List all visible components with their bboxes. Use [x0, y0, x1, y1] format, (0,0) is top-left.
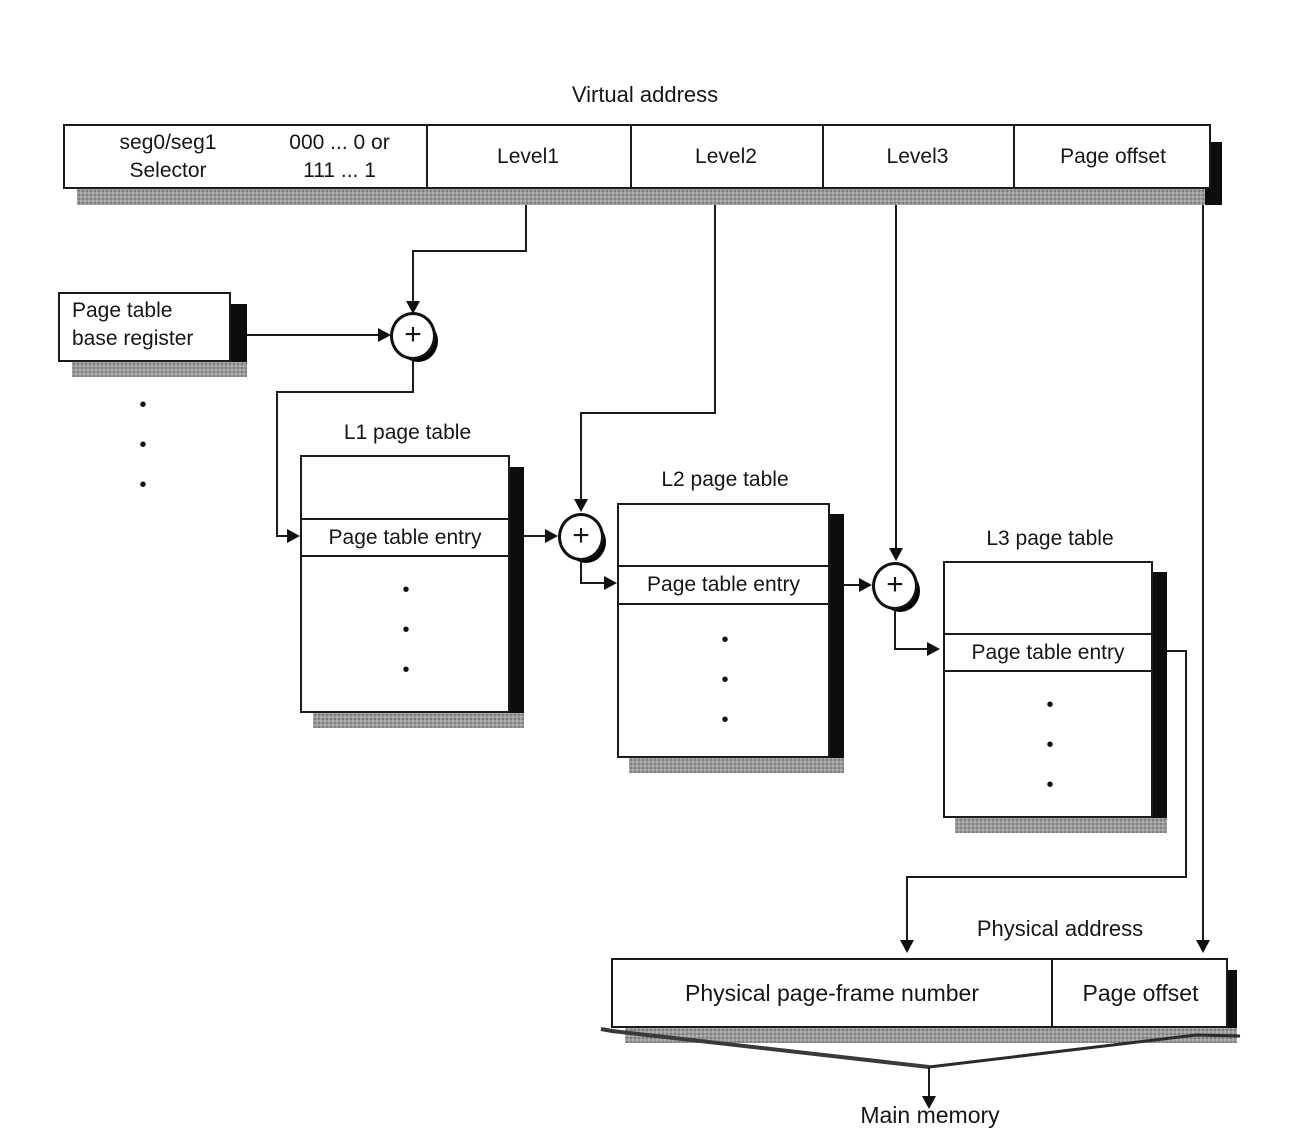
box-shadow — [313, 713, 524, 728]
physical-address-title: Physical address — [950, 916, 1170, 942]
connector-line — [412, 357, 414, 393]
connector-line — [1185, 650, 1187, 878]
dot-icon: • — [1046, 765, 1053, 805]
bits-line2: 111 ... 1 — [257, 157, 422, 185]
l3-table-title: L3 page table — [950, 527, 1150, 551]
connector-line — [580, 558, 582, 584]
arrowhead — [900, 940, 914, 953]
connector-line — [412, 250, 527, 252]
l1-table-title: L1 page table — [310, 421, 505, 445]
dot-icon: • — [1046, 685, 1053, 725]
main-memory-label: Main memory — [830, 1102, 1030, 1129]
selector-bits-cell: 000 ... 0 or 111 ... 1 — [257, 129, 422, 185]
box-shadow — [625, 1028, 1237, 1043]
connector-line — [247, 334, 381, 336]
dot-icon: • — [402, 650, 409, 690]
address-translation-diagram: Virtual address seg0/seg1 Selector 000 .… — [0, 0, 1289, 1146]
ellipsis-dots: • • • — [715, 620, 735, 740]
connector-line — [1167, 650, 1187, 652]
l2-page-table-box: Page table entry • • • — [617, 503, 830, 758]
adder-circle-3: + — [872, 562, 918, 610]
l3-page-table-entry: Page table entry — [945, 633, 1151, 672]
arrowhead — [927, 642, 940, 656]
l3-page-table-box: Page table entry • • • — [943, 561, 1153, 818]
level3-cell: Level3 — [822, 126, 1013, 187]
arrowhead — [545, 529, 558, 543]
connector-line — [580, 582, 607, 584]
arrowhead — [859, 578, 872, 592]
base-register-label: Page table base register — [72, 297, 222, 353]
connector-line — [580, 412, 582, 500]
connector-line — [895, 205, 897, 549]
selector-line2: Selector — [83, 157, 253, 185]
dot-icon: • — [721, 620, 728, 660]
page-table-base-register-box: Page table base register — [58, 292, 231, 362]
arrowhead — [604, 576, 617, 590]
l1-page-table-box: Page table entry • • • — [300, 455, 510, 713]
arrowhead — [889, 548, 903, 561]
connector-line — [928, 1067, 930, 1098]
l2-table-title: L2 page table — [625, 468, 825, 492]
l2-page-table-entry: Page table entry — [619, 565, 828, 605]
bits-line1: 000 ... 0 or — [257, 129, 422, 157]
arrowhead — [574, 499, 588, 512]
dot-icon: • — [721, 660, 728, 700]
connector-line — [1202, 205, 1204, 940]
ellipsis-dots: • • • — [1040, 685, 1060, 805]
connector-line — [276, 391, 414, 393]
box-shadow — [955, 818, 1167, 833]
dot-icon: • — [402, 610, 409, 650]
l1-page-table-entry: Page table entry — [302, 518, 508, 557]
physical-address-box: Physical page-frame number Page offset — [611, 958, 1228, 1028]
arrowhead — [287, 529, 300, 543]
connector-line — [412, 250, 414, 303]
ellipsis-dots: • • • — [133, 385, 153, 505]
level1-cell: Level1 — [426, 126, 630, 187]
connector-line — [580, 412, 716, 414]
connector-line — [894, 607, 896, 650]
box-shadow — [629, 758, 844, 773]
base-register-line2: base register — [72, 325, 222, 353]
adder-circle-1: + — [390, 312, 436, 360]
box-shadow — [72, 362, 247, 377]
arrowhead — [1196, 940, 1210, 953]
virtual-address-title: Virtual address — [540, 82, 750, 108]
segment-selector-cell: seg0/seg1 Selector — [83, 129, 253, 185]
selector-line1: seg0/seg1 — [83, 129, 253, 157]
connector-line — [906, 876, 1187, 878]
connector-line — [714, 205, 716, 414]
plus-icon: + — [572, 521, 590, 551]
dot-icon: • — [139, 465, 146, 505]
connector-line — [276, 391, 278, 537]
connector-line — [525, 205, 527, 252]
dot-icon: • — [402, 570, 409, 610]
page-offset-cell: Page offset — [1013, 126, 1213, 187]
box-shadow — [1152, 572, 1167, 831]
physical-frame-cell: Physical page-frame number — [613, 960, 1051, 1026]
plus-icon: + — [404, 320, 422, 350]
connector-line — [894, 648, 930, 650]
ellipsis-dots: • • • — [396, 570, 416, 690]
box-shadow — [77, 189, 1222, 205]
adder-circle-2: + — [558, 513, 604, 561]
dot-icon: • — [1046, 725, 1053, 765]
dot-icon: • — [139, 425, 146, 465]
box-shadow — [829, 514, 844, 772]
physical-page-offset-cell: Page offset — [1051, 960, 1230, 1026]
virtual-address-box: seg0/seg1 Selector 000 ... 0 or 111 ... … — [63, 124, 1211, 189]
base-register-line1: Page table — [72, 297, 222, 325]
dot-icon: • — [721, 700, 728, 740]
dot-icon: • — [139, 385, 146, 425]
connector-line — [906, 876, 908, 940]
level2-cell: Level2 — [630, 126, 822, 187]
plus-icon: + — [886, 570, 904, 600]
box-shadow — [509, 467, 524, 727]
